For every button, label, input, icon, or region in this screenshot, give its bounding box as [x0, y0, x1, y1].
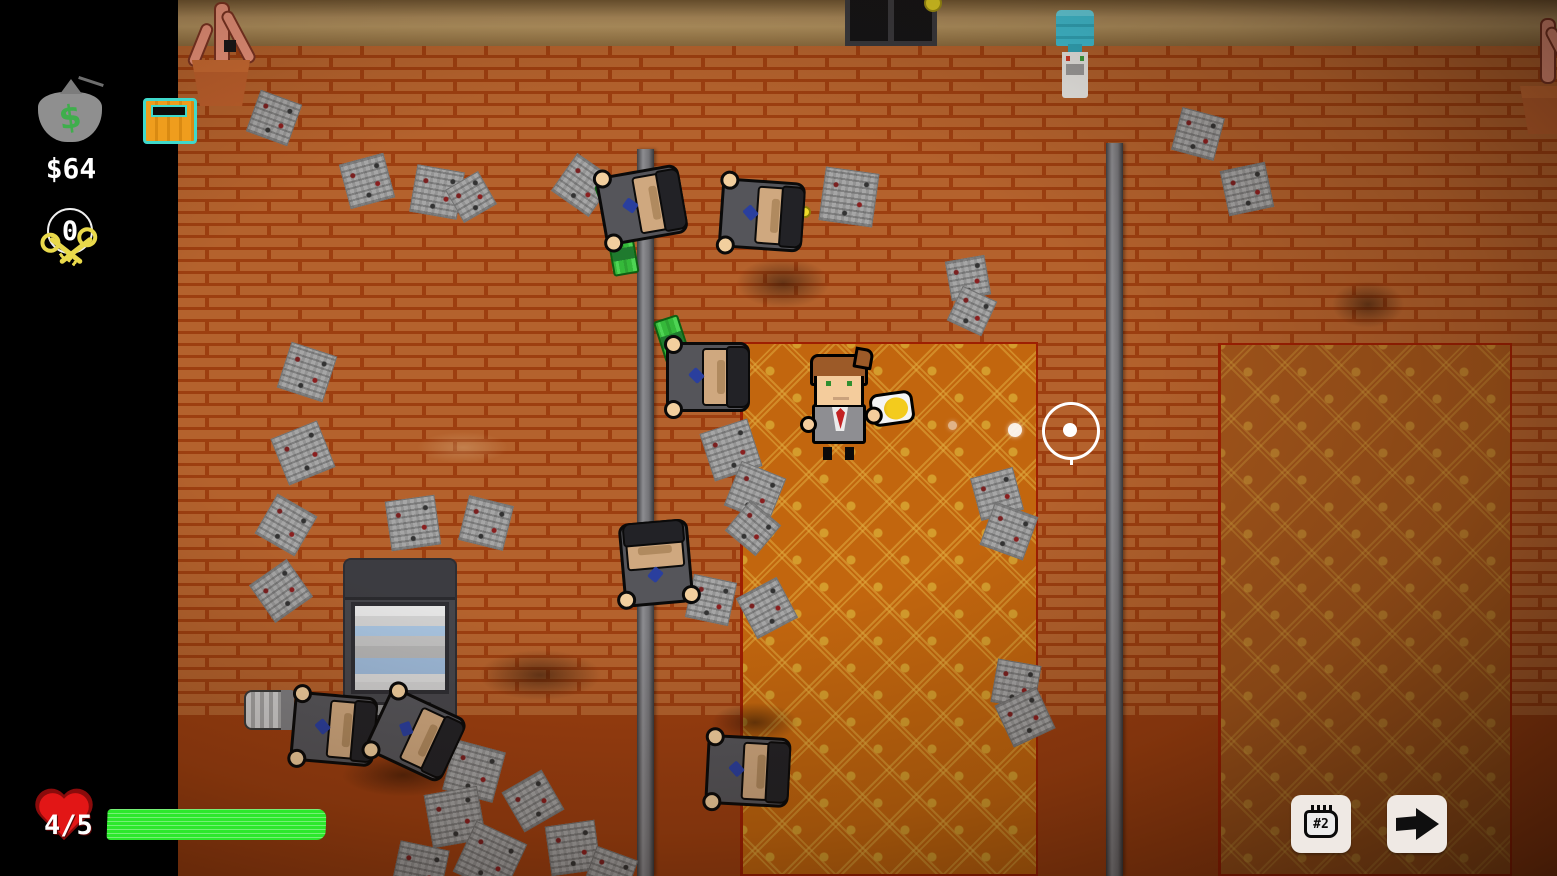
crumpled-paper: [270, 420, 335, 485]
scene-objects: [0, 0, 1557, 876]
crumpled-paper: [736, 577, 798, 639]
key-count: 0: [62, 216, 78, 247]
health-value: 4/5: [44, 810, 93, 841]
chest-slot-icon: [151, 105, 187, 117]
health-bar: [106, 809, 326, 840]
arrow-right-icon: [1396, 808, 1438, 840]
fallen-guard: [613, 514, 699, 612]
fallen-guard: [713, 173, 810, 257]
crumpled-paper: [819, 167, 880, 228]
wall-stain: [1318, 272, 1418, 337]
crumpled-paper: [458, 495, 514, 551]
crumpled-paper: [246, 90, 302, 146]
money-amount: $64: [34, 152, 108, 185]
wall-stain: [718, 248, 848, 318]
dollar-symbol: $: [56, 97, 83, 138]
crumpled-paper: [277, 342, 337, 402]
bullet-tracer: [1008, 423, 1022, 437]
fist-icon: #2: [1304, 810, 1338, 838]
crumpled-paper: [249, 559, 313, 623]
crumpled-paper: [502, 770, 565, 833]
fallen-guard: [700, 730, 796, 813]
player-face: [814, 376, 864, 405]
crumpled-paper: [385, 495, 441, 551]
player-hand: [800, 416, 817, 433]
player-character: [808, 354, 872, 460]
crosshair-cursor: [1042, 402, 1100, 460]
next-button[interactable]: [1387, 795, 1447, 853]
held-item: [868, 389, 916, 428]
bullet-tracer: [948, 421, 957, 430]
weapon-slot-button[interactable]: #2: [1291, 795, 1351, 853]
fallen-guard: [662, 338, 754, 416]
weapon-slot-number: #2: [1313, 817, 1329, 832]
crumpled-paper: [1220, 162, 1275, 217]
fallen-guard: [590, 159, 694, 252]
wall-stain: [398, 425, 528, 470]
crumpled-paper: [255, 494, 318, 557]
crumpled-paper: [1171, 107, 1225, 161]
player-suit: [812, 404, 866, 444]
crumpled-paper: [339, 153, 395, 209]
chest-button[interactable]: [143, 98, 197, 144]
wall-stain: [455, 640, 625, 710]
game-screen: $ $64 0 4/5 #2: [0, 0, 1557, 876]
